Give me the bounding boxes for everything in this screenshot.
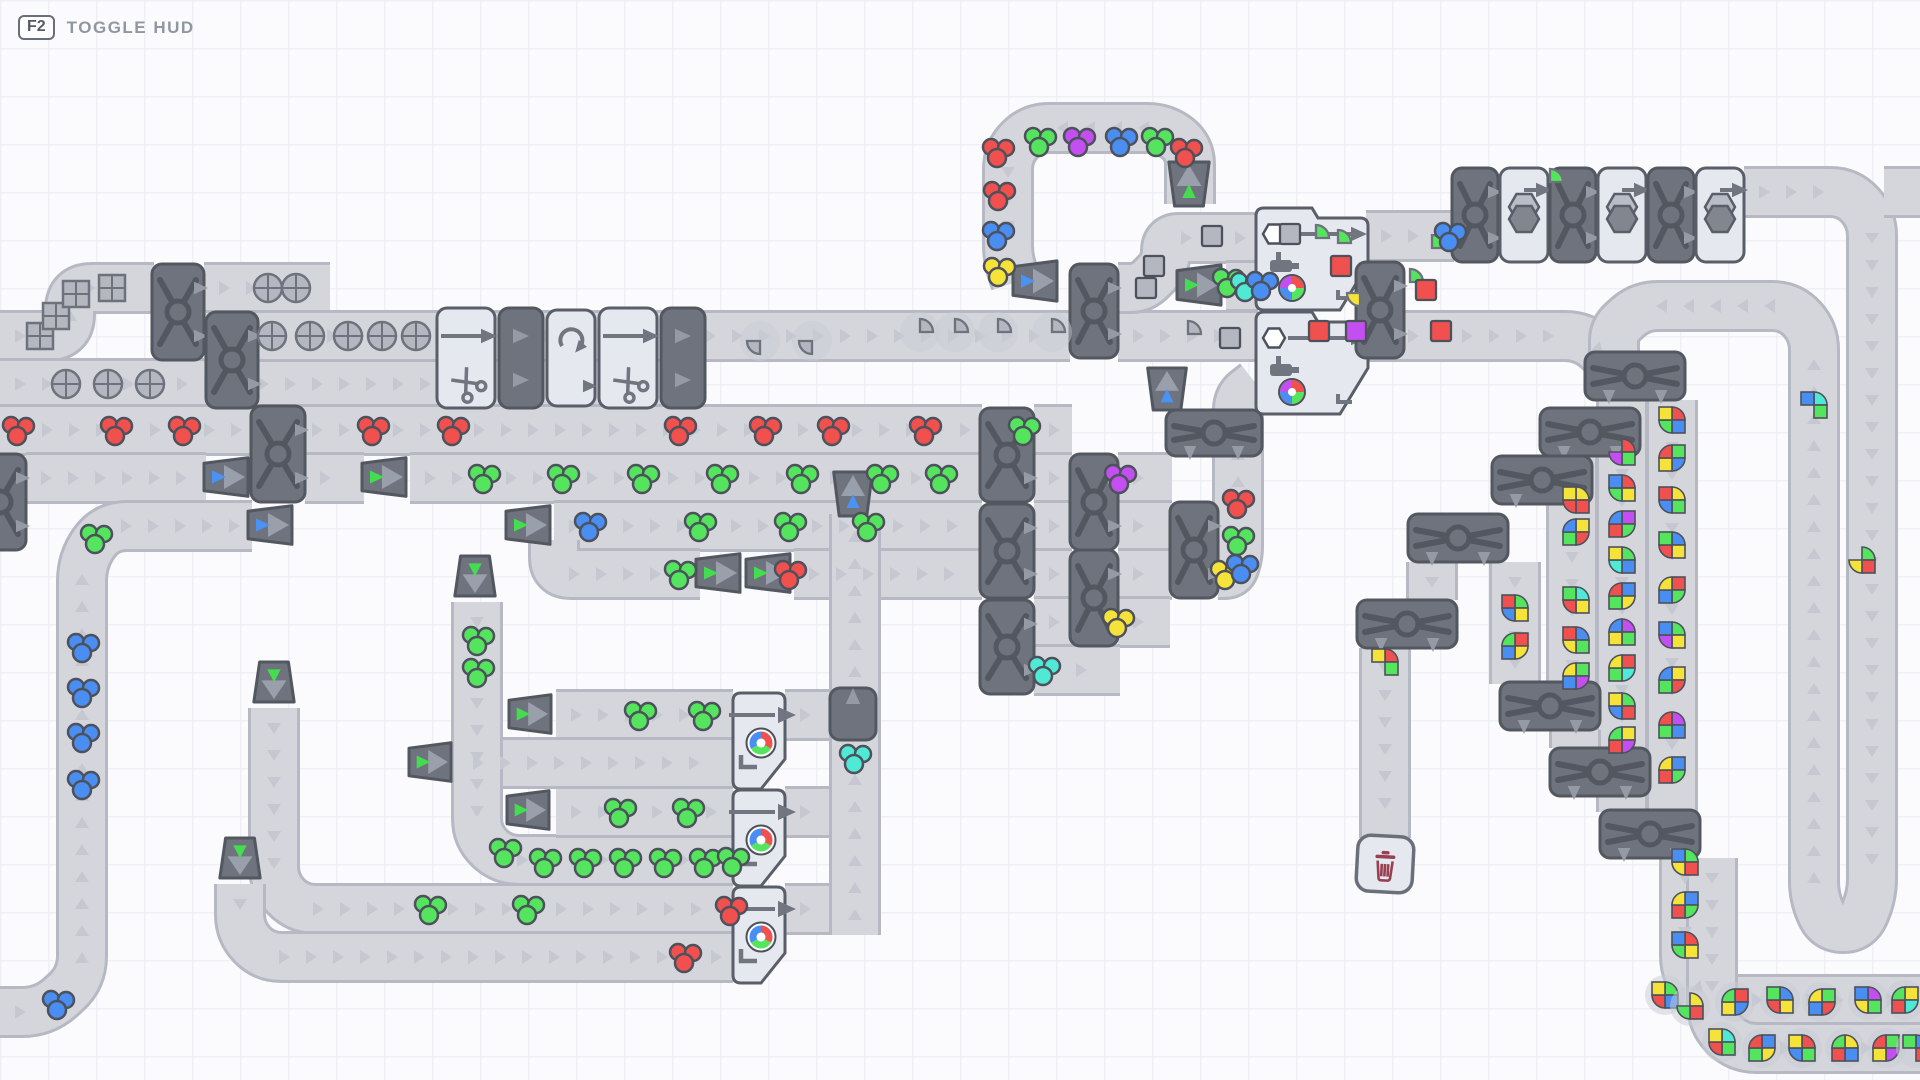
item-sq — [1346, 321, 1366, 341]
building-stacker[interactable] — [1696, 168, 1748, 262]
item-c4 — [136, 370, 164, 398]
item-comp — [1609, 511, 1635, 537]
factory-canvas[interactable] — [0, 0, 1920, 1080]
item-comp — [1609, 547, 1635, 573]
building-tunnel[interactable] — [1013, 261, 1057, 301]
item-sq — [1331, 256, 1351, 276]
item-comp — [1659, 445, 1685, 471]
building-tunnel[interactable] — [204, 458, 248, 497]
building-tunnel[interactable] — [362, 458, 406, 497]
building-crossing[interactable] — [1500, 682, 1600, 734]
item-s4 — [63, 281, 89, 307]
building-crossing[interactable] — [1408, 514, 1508, 566]
item-sq — [1220, 328, 1240, 348]
item-comp — [1760, 980, 1800, 1020]
item-comp — [1563, 519, 1589, 545]
building-tunnel[interactable] — [834, 472, 873, 516]
building-crossing[interactable] — [1356, 262, 1408, 358]
building-crossing[interactable] — [1550, 748, 1650, 800]
building-tunnel[interactable] — [254, 662, 294, 702]
item-q — [978, 312, 1018, 352]
item-comp — [1659, 577, 1685, 603]
building-crossing[interactable] — [1585, 352, 1685, 404]
item-s4 — [99, 275, 125, 301]
item-q — [740, 321, 780, 361]
item-comp — [1715, 982, 1755, 1022]
item-comp — [1659, 622, 1685, 648]
building-crossing[interactable] — [152, 264, 208, 360]
building-crossing[interactable] — [980, 600, 1038, 694]
building-tunnel[interactable] — [1169, 162, 1209, 206]
item-c4 — [334, 322, 362, 350]
item-comp — [1609, 475, 1635, 501]
building-tunnel[interactable] — [1148, 368, 1187, 410]
item-q — [900, 312, 940, 352]
building-tunnel[interactable] — [696, 554, 740, 593]
item-sq — [1136, 278, 1156, 298]
building-tunnel[interactable] — [220, 838, 260, 878]
item-sq — [1309, 321, 1329, 341]
item-comp — [1659, 667, 1685, 693]
building-crossing[interactable] — [206, 312, 262, 408]
game-viewport: F2 TOGGLE HUD — [0, 0, 1920, 1080]
building-mixer[interactable] — [729, 693, 796, 789]
item-comp — [1563, 487, 1589, 513]
building-cutter[interactable] — [599, 308, 659, 408]
item-comp — [1659, 532, 1685, 558]
item-q — [1032, 312, 1072, 352]
building-block[interactable] — [499, 308, 543, 408]
item-comp — [1825, 1028, 1865, 1068]
building-tunnel[interactable] — [248, 506, 292, 545]
item-comp — [1848, 980, 1888, 1020]
item-c4 — [296, 322, 324, 350]
building-tunnel[interactable] — [509, 695, 551, 734]
item-sq — [1144, 256, 1164, 276]
item-sq — [1280, 224, 1300, 244]
item-c4 — [94, 370, 122, 398]
building-tunnel[interactable] — [507, 791, 549, 830]
item-comp — [1672, 932, 1698, 958]
item-comp — [1609, 693, 1635, 719]
item-c4 — [402, 322, 430, 350]
item-c4 — [254, 274, 282, 302]
item-comp — [1502, 595, 1528, 621]
building-tunnel[interactable] — [506, 506, 550, 545]
building-merge[interactable] — [830, 688, 876, 740]
hud-key-badge: F2 — [18, 15, 55, 40]
item-sq — [1202, 226, 1222, 246]
item-comp — [1609, 727, 1635, 753]
item-q — [935, 312, 975, 352]
building-crossing[interactable] — [251, 406, 309, 502]
building-crossing[interactable] — [980, 504, 1038, 598]
building-crossing[interactable] — [0, 454, 30, 550]
item-q — [1347, 293, 1360, 306]
building-stacker[interactable] — [1500, 168, 1552, 262]
item-comp — [1659, 487, 1685, 513]
item-comp — [1563, 627, 1589, 653]
building-rotator[interactable] — [547, 310, 597, 406]
item-sq — [1416, 280, 1436, 300]
hud-toggle-hint: F2 TOGGLE HUD — [18, 15, 195, 40]
building-crossing[interactable] — [1648, 168, 1698, 262]
building-crossing[interactable] — [1357, 600, 1457, 652]
item-comp — [1702, 1022, 1742, 1062]
item-comp — [1659, 407, 1685, 433]
item-comp — [1659, 757, 1685, 783]
building-stacker[interactable] — [1598, 168, 1650, 262]
item-comp — [1563, 587, 1589, 613]
building-tunnel[interactable] — [409, 743, 451, 782]
item-comp — [1609, 619, 1635, 645]
item-c4 — [258, 322, 286, 350]
building-cutter[interactable] — [437, 308, 497, 408]
building-block[interactable] — [661, 308, 705, 408]
item-q — [792, 321, 832, 361]
building-crossing[interactable] — [1166, 410, 1262, 460]
conveyor-belt[interactable] — [0, 526, 252, 1012]
item-c4 — [368, 322, 396, 350]
item-sq — [1431, 321, 1451, 341]
item-c4 — [52, 370, 80, 398]
hud-label: TOGGLE HUD — [67, 18, 195, 38]
item-comp — [1502, 633, 1528, 659]
building-trash[interactable] — [1356, 835, 1415, 894]
building-crossing[interactable] — [1452, 168, 1502, 262]
item-comp — [1672, 849, 1698, 875]
building-crossing[interactable] — [1170, 502, 1222, 598]
item-comp — [1563, 663, 1589, 689]
item-comp — [1672, 892, 1698, 918]
item-comp — [1742, 1028, 1782, 1068]
building-tunnel[interactable] — [455, 556, 495, 596]
item-comp — [1782, 1028, 1822, 1068]
item-comp — [1609, 583, 1635, 609]
item-comp — [1609, 655, 1635, 681]
building-crossing[interactable] — [1070, 264, 1122, 358]
item-c4 — [282, 274, 310, 302]
item-comp — [1670, 986, 1710, 1026]
item-comp — [1659, 712, 1685, 738]
item-comp — [1802, 982, 1842, 1022]
